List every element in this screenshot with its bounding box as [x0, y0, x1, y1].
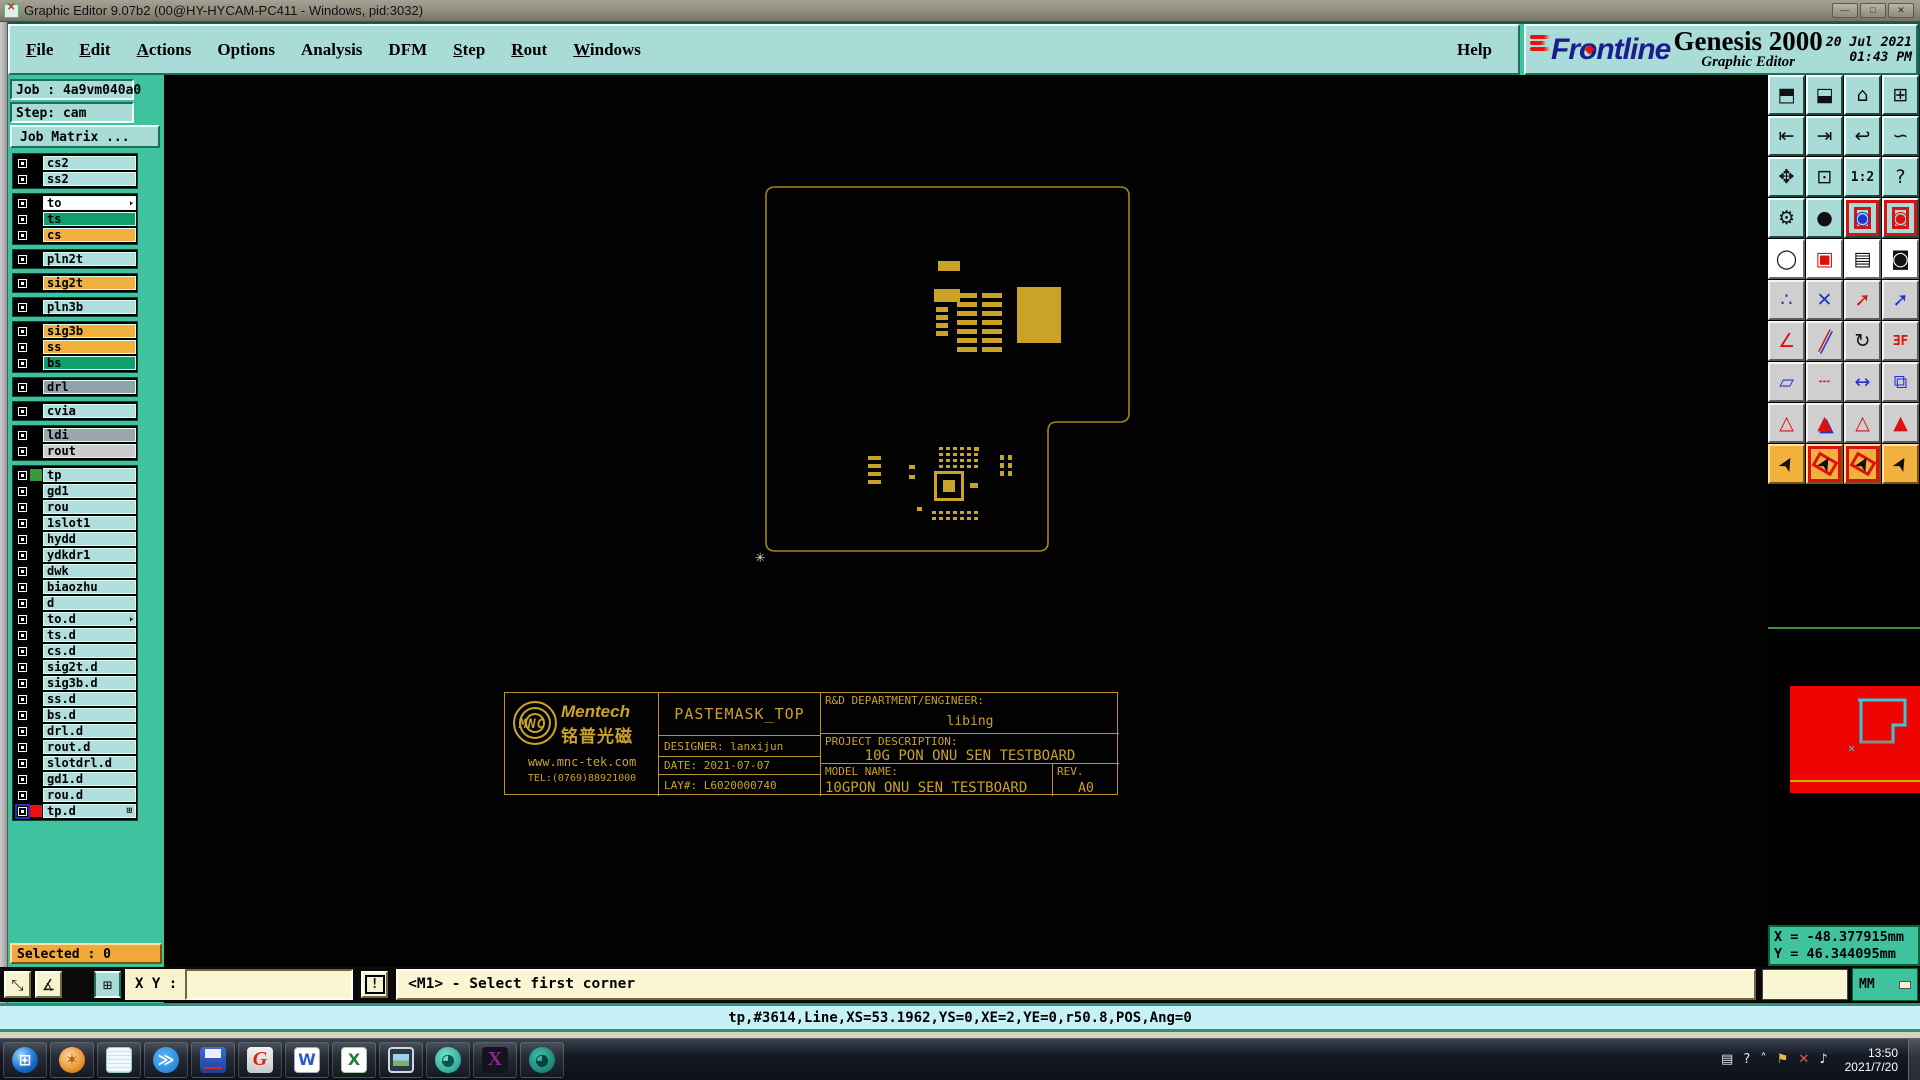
layer-row-pln2t[interactable]: pln2t	[14, 251, 136, 267]
scale-1-2-button[interactable]: 1:2	[1844, 157, 1881, 197]
pad	[868, 480, 881, 484]
shell-app-taskbar-button[interactable]: ✶	[50, 1042, 94, 1078]
layer-row-dwk[interactable]: dwk	[14, 563, 136, 579]
zoom-expand-icon: ✥	[1779, 166, 1795, 188]
pad	[953, 511, 957, 514]
layer-checkbox[interactable]	[17, 646, 28, 657]
taskbar-clock[interactable]: 13:502021/7/20	[1845, 1046, 1898, 1074]
layer-row-rout[interactable]: rout	[14, 443, 136, 459]
layer-name: ts	[43, 212, 136, 226]
layer-checkbox[interactable]	[17, 790, 28, 801]
zoom-center-button[interactable]: ⊡	[1806, 157, 1843, 197]
layer-checkbox[interactable]	[17, 174, 28, 185]
layer-grid-icon: ⊞	[127, 805, 132, 817]
layer-checkbox[interactable]	[17, 614, 28, 625]
pad	[946, 447, 950, 450]
layer-name: tp.d⊞	[43, 804, 136, 818]
layer-checkbox[interactable]	[17, 358, 28, 369]
zoom-home-icon: ⌂	[1856, 84, 1868, 106]
layer-row-ldi[interactable]: ldi	[14, 427, 136, 443]
layer-group: cvia	[12, 401, 138, 421]
layer-row-biaozhu[interactable]: biaozhu	[14, 579, 136, 595]
layer-group: pln2t	[12, 249, 138, 269]
layer-row-hydd[interactable]: hydd	[14, 531, 136, 547]
break-line-icon: ┄	[1819, 371, 1830, 393]
pan-right-icon: ⇥	[1817, 125, 1833, 147]
layer-name: biaozhu	[43, 580, 136, 594]
layer-row-drl[interactable]: drl	[14, 379, 136, 395]
window-titlebar[interactable]: Graphic Editor 9.07b2 (00@HY-HYCAM-PC411…	[0, 0, 1920, 22]
layer-row-to[interactable]: to➤	[14, 195, 136, 211]
wps-excel-taskbar-button[interactable]: X	[332, 1042, 376, 1078]
merge-shapes-button[interactable]: ⧉	[1882, 362, 1919, 402]
step-label: Step: cam	[10, 102, 134, 123]
delete-item-button[interactable]: ✕	[1806, 280, 1843, 320]
layer-row-tp[interactable]: tp	[14, 467, 136, 483]
capture-app-taskbar-button[interactable]: ◕	[426, 1042, 470, 1078]
show-desktop-button[interactable]	[1908, 1039, 1920, 1080]
menu-options[interactable]: Options	[217, 40, 275, 60]
toolbar-row: ⬒⬓⌂⊞	[1768, 75, 1920, 116]
layer-name: rout	[43, 444, 136, 458]
pan-left-icon: ⇤	[1779, 125, 1795, 147]
net-points-button[interactable]: ∴	[1768, 280, 1805, 320]
drawing-title-block: MNC Mentech 铭普光磁 www.mnc-tek.com TEL:(07…	[504, 692, 1118, 795]
menu-dfm[interactable]: DFM	[388, 40, 427, 60]
recorder-app-taskbar-button[interactable]: ◕	[520, 1042, 564, 1078]
layer-row-sig2t.d[interactable]: sig2t.d	[14, 659, 136, 675]
titleblock-project-cell: PROJECT DESCRIPTION: 10G PON ONU SEN TES…	[821, 734, 1119, 764]
toolbar-row: ∴✕➚➚	[1768, 280, 1920, 321]
layer-checkbox[interactable]	[17, 230, 28, 241]
toolbar-row: ➤➤➤➤	[1768, 444, 1920, 485]
layer-row-rou.d[interactable]: rou.d	[14, 787, 136, 803]
pad	[967, 465, 971, 468]
photo-viewer-taskbar-button[interactable]	[379, 1042, 423, 1078]
previous-view-button[interactable]: ↩	[1844, 116, 1881, 156]
feature-status-text: tp,#3614,Line,XS=53.1962,YS=0,XE=2,YE=0,…	[728, 1010, 1192, 1026]
menu-edit[interactable]: Edit	[79, 40, 110, 60]
arrow-tool-c-button[interactable]: △	[1844, 403, 1881, 443]
pad	[909, 465, 915, 469]
layer-name: gd1.d	[43, 772, 136, 786]
pad	[946, 517, 950, 520]
layer-checkbox[interactable]	[17, 566, 28, 577]
context-help-button[interactable]: ?	[1882, 157, 1919, 197]
datetime-display: 20 Jul 202101:43 PM	[1826, 35, 1912, 65]
layer-row-sig2t[interactable]: sig2t	[14, 275, 136, 291]
layer-row-gd1.d[interactable]: gd1.d	[14, 771, 136, 787]
layer-row-d[interactable]: d	[14, 595, 136, 611]
xy-input[interactable]	[185, 969, 353, 1000]
pan-right-button[interactable]: ⇥	[1806, 116, 1843, 156]
layer-name: rout.d	[43, 740, 136, 754]
zoom-center-icon: ⊡	[1817, 166, 1833, 188]
save-tool-taskbar-button[interactable]	[191, 1042, 235, 1078]
app-icon	[4, 4, 19, 18]
pad	[957, 293, 977, 298]
swap-pads-button[interactable]: ▱	[1768, 362, 1805, 402]
pad	[957, 302, 977, 307]
layer-color-swatch	[30, 805, 42, 817]
pad	[953, 517, 957, 520]
overview-pane[interactable]: ✕	[1790, 686, 1920, 793]
pad	[982, 320, 1002, 325]
layer-checkbox[interactable]	[17, 214, 28, 225]
pad	[909, 475, 915, 479]
zoom-area-button[interactable]: ⤡	[4, 971, 31, 998]
pad	[1008, 463, 1012, 468]
rotate-angle-button[interactable]: ∠	[1768, 321, 1805, 361]
dingtalk-taskbar-button[interactable]: ≫	[144, 1042, 188, 1078]
move-origin-button[interactable]: ➚	[1844, 280, 1881, 320]
titleblock-designer: DESIGNER: lanxijun	[659, 736, 821, 757]
zoom-home-button[interactable]: ⌂	[1844, 75, 1881, 115]
arrow-tool-a-button[interactable]: △	[1768, 403, 1805, 443]
dimension-icon: ↔	[1855, 371, 1871, 393]
layer-checkbox[interactable]	[17, 254, 28, 265]
zoom-window-xy-button[interactable]: ⊞	[1882, 75, 1919, 115]
photo-viewer-icon	[388, 1047, 414, 1073]
pad	[939, 453, 943, 456]
select-polygon-icon: ➤	[1849, 452, 1876, 477]
layer-row-bs.d[interactable]: bs.d	[14, 707, 136, 723]
layer-checkbox[interactable]	[17, 278, 28, 289]
exceed-x-taskbar-button[interactable]: X	[473, 1042, 517, 1078]
pad	[939, 517, 943, 520]
layer-row-bs[interactable]: bs	[14, 355, 136, 371]
select-reference-button[interactable]: ◙	[1882, 239, 1919, 279]
layer-name: to➤	[43, 196, 136, 210]
layer-checkbox[interactable]	[17, 198, 28, 209]
window-title: Graphic Editor 9.07b2 (00@HY-HYCAM-PC411…	[24, 3, 423, 18]
maximize-button[interactable]: □	[1860, 3, 1886, 18]
pad	[953, 453, 957, 456]
origin-crosshair-icon: ✳	[755, 547, 765, 567]
layer-checkbox[interactable]	[17, 326, 28, 337]
setup-tools-icon: ⚙	[1778, 207, 1795, 229]
titleblock-lay-number: LAY#: L6020000740	[659, 775, 821, 796]
flag-tray-icon[interactable]: ⚑	[1777, 1052, 1789, 1067]
wps-word-taskbar-button[interactable]: W	[285, 1042, 329, 1078]
layer-row-1slot1[interactable]: 1slot1	[14, 515, 136, 531]
measure-ruler-button[interactable]: ▤	[1844, 239, 1881, 279]
overview-origin-marker: ✕	[1848, 741, 1855, 755]
titleblock-date: DATE: 2021-07-07	[659, 757, 821, 775]
swap-pads-icon: ▱	[1779, 371, 1794, 393]
layer-row-cs[interactable]: cs	[14, 227, 136, 243]
cursor-coordinates: X = -48.377915mm Y = 46.344095mm	[1768, 925, 1920, 966]
measure-angle-button[interactable]: ∡	[35, 971, 62, 998]
menu-analysis[interactable]: Analysis	[301, 40, 362, 60]
copy-vector-button[interactable]: ➚	[1882, 280, 1919, 320]
pad	[943, 480, 955, 492]
rotate-angle-icon: ∠	[1778, 330, 1795, 352]
mirror-line-button[interactable]: ╱	[1806, 321, 1843, 361]
grid-toggle-icon: ⊞	[103, 976, 112, 994]
layer-checkbox[interactable]	[17, 598, 28, 609]
layer-row-sig3b.d[interactable]: sig3b.d	[14, 675, 136, 691]
select-frame-button[interactable]: ➤	[1806, 444, 1843, 484]
layer-checkbox[interactable]	[17, 518, 28, 529]
layer-checkbox[interactable]	[17, 502, 28, 513]
layer-checkbox[interactable]	[17, 630, 28, 641]
toolbar-row: ✥⊡1:2?	[1768, 157, 1920, 198]
layer-name: ss2	[43, 172, 136, 186]
layer-row-ss2[interactable]: ss2	[14, 171, 136, 187]
layer-checkbox[interactable]	[17, 158, 28, 169]
pad	[953, 459, 957, 462]
right-toolbar-rail: ⬒⬓⌂⊞⇤⇥↩∽✥⊡1:2?⚙●◉◉◯▣▤◙∴✕➚➚∠╱↻ƎF▱┄↔⧉△▲△▲➤…	[1768, 75, 1920, 1004]
layer-row-cs.d[interactable]: cs.d	[14, 643, 136, 659]
pad	[932, 517, 936, 520]
dimension-button[interactable]: ↔	[1844, 362, 1881, 402]
prompt-message: <M1> - Select first corner	[396, 969, 1756, 1000]
layer-row-rout.d[interactable]: rout.d	[14, 739, 136, 755]
layer-row-pln3b[interactable]: pln3b	[14, 299, 136, 315]
titleblock-model-cell: MODEL NAME: 10GPON ONU SEN TESTBOARD	[821, 764, 1053, 796]
toolbar-row: ⚙●◉◉	[1768, 198, 1920, 239]
pad	[974, 447, 978, 450]
titleblock-layer-name: PASTEMASK_TOP	[659, 693, 821, 736]
pad	[917, 507, 922, 511]
layer-name: gd1	[43, 484, 136, 498]
layer-checkbox[interactable]	[17, 742, 28, 753]
menu-rout[interactable]: Rout	[511, 40, 547, 60]
setup-tools-button[interactable]: ⚙	[1768, 198, 1805, 238]
layer-checkbox[interactable]	[17, 550, 28, 561]
select-net-icon: ➤	[1887, 452, 1914, 477]
select-polygon-button[interactable]: ➤	[1844, 444, 1881, 484]
alert-tray-icon[interactable]: ✕	[1798, 1052, 1809, 1067]
layer-checkbox[interactable]	[17, 662, 28, 673]
copy-to-layer-button[interactable]: ◯	[1768, 239, 1805, 279]
break-line-button[interactable]: ┄	[1806, 362, 1843, 402]
layer-group: tpgd1rou1slot1hyddydkdr1dwkbiaozhudto.d➤…	[12, 465, 138, 821]
genesis-g-taskbar-button[interactable]: G	[238, 1042, 282, 1078]
scale-1-2-icon: 1:2	[1851, 170, 1874, 185]
layer-name: hydd	[43, 532, 136, 546]
pad	[974, 453, 978, 456]
menu-step[interactable]: Step	[453, 40, 485, 60]
layer-checkbox[interactable]	[17, 302, 28, 313]
layer-row-ss[interactable]: ss	[14, 339, 136, 355]
copy-vector-icon: ➚	[1893, 289, 1909, 311]
rotate-90-button[interactable]: ↻	[1844, 321, 1881, 361]
layer-row-gd1[interactable]: gd1	[14, 483, 136, 499]
layer-group: to➤tscs	[12, 193, 138, 245]
pad	[936, 315, 948, 320]
layer-name: cs2	[43, 156, 136, 170]
layer-row-cvia[interactable]: cvia	[14, 403, 136, 419]
job-label: Job : 4a9vm040a0	[10, 79, 134, 100]
reference-frame-button[interactable]: ▣	[1806, 239, 1843, 279]
highlight-pad-button[interactable]: ●	[1806, 198, 1843, 238]
genesis-g-icon: G	[247, 1047, 273, 1073]
pad	[939, 459, 943, 462]
menu-bar: FileEditActionsOptionsAnalysisDFMStepRou…	[8, 24, 1520, 75]
net-reference-b-button[interactable]: ◉	[1882, 198, 1919, 238]
pad	[953, 447, 957, 450]
alert-button[interactable]: !	[361, 971, 388, 998]
mirror-line-icon: ╱	[1819, 330, 1830, 352]
layer-name: dwk	[43, 564, 136, 578]
layer-name: 1slot1	[43, 516, 136, 530]
layer-checkbox[interactable]	[17, 486, 28, 497]
layer-row-cs2[interactable]: cs2	[14, 155, 136, 171]
layer-group: sig2t	[12, 273, 138, 293]
save-tool-icon	[200, 1047, 226, 1073]
zoom-expand-button[interactable]: ✥	[1768, 157, 1805, 197]
arrow-tool-d-button[interactable]: ▲	[1882, 403, 1919, 443]
printer-tray-icon[interactable]: ▤	[1721, 1052, 1733, 1067]
net-points-icon: ∴	[1780, 289, 1792, 311]
xy-label: X Y :	[125, 969, 185, 1000]
taskbar-icons: ⊞✶≫GWX◕X◕	[0, 1042, 564, 1078]
layer-name: sig2t.d	[43, 660, 136, 674]
layer-row-drl.d[interactable]: drl.d	[14, 723, 136, 739]
layer-checkbox[interactable]	[17, 774, 28, 785]
arrow-tool-b-icon: ▲	[1817, 412, 1832, 434]
command-tool-buttons: ⤡∡⊞	[0, 971, 121, 998]
pad	[946, 465, 950, 468]
notepad-icon	[106, 1047, 132, 1073]
notepad-taskbar-button[interactable]	[97, 1042, 141, 1078]
overview-board-shape	[1855, 697, 1910, 747]
layer-checkbox[interactable]	[17, 710, 28, 721]
command-bar: ⤡∡⊞ X Y : ! <M1> - Select first corner M…	[0, 967, 1920, 1002]
pad	[1000, 463, 1004, 468]
minimize-button[interactable]: —	[1832, 3, 1858, 18]
pan-left-button[interactable]: ⇤	[1768, 116, 1805, 156]
start-button-taskbar-button[interactable]: ⊞	[3, 1042, 47, 1078]
layer-checkbox[interactable]	[17, 758, 28, 769]
mnc-telephone: TEL:(0769)88921000	[505, 773, 659, 784]
pad	[957, 347, 977, 352]
layer-row-tp.d[interactable]: tp.d⊞	[14, 803, 136, 819]
pad	[868, 456, 881, 460]
context-help-icon: ?	[1895, 166, 1905, 188]
grid-toggle-button[interactable]: ⊞	[94, 971, 121, 998]
pad	[936, 323, 948, 328]
pad	[1008, 471, 1012, 476]
layer-checkbox[interactable]	[17, 534, 28, 545]
pad	[936, 307, 948, 312]
layer-name: cs.d	[43, 644, 136, 658]
menu-windows[interactable]: Windows	[573, 40, 641, 60]
selected-count: Selected : 0	[10, 943, 162, 964]
zoom-out-button[interactable]: ⬓	[1806, 75, 1843, 115]
layer-row-ydkdr1[interactable]: ydkdr1	[14, 547, 136, 563]
layer-row-ts[interactable]: ts	[14, 211, 136, 227]
pad	[960, 453, 964, 456]
layer-active-arrow-icon: ➤	[123, 614, 136, 624]
layer-checkbox[interactable]	[17, 406, 28, 417]
product-title: Genesis 2000	[1670, 28, 1826, 54]
feature-status-bar: tp,#3614,Line,XS=53.1962,YS=0,XE=2,YE=0,…	[0, 1003, 1920, 1032]
layer-checkbox[interactable]	[17, 446, 28, 457]
menu-actions[interactable]: Actions	[137, 40, 192, 60]
layer-name: drl	[43, 380, 136, 394]
delete-item-icon: ✕	[1817, 289, 1833, 311]
layer-row-ts.d[interactable]: ts.d	[14, 627, 136, 643]
mnc-website: www.mnc-tek.com	[505, 755, 659, 769]
layer-checkbox[interactable]	[17, 342, 28, 353]
volume-tray-icon[interactable]: ♪	[1819, 1052, 1827, 1067]
close-button[interactable]: ✕	[1888, 3, 1914, 18]
layer-name: sig2t	[43, 276, 136, 290]
redraw-icon: ∽	[1893, 125, 1909, 147]
pad	[982, 338, 1002, 343]
pad	[960, 459, 964, 462]
pad	[946, 459, 950, 462]
pad	[974, 511, 978, 514]
units-dropdown-icon[interactable]	[1899, 981, 1911, 989]
layer-checkbox[interactable]	[17, 582, 28, 593]
layer-checkbox[interactable]	[17, 382, 28, 393]
help-tray-icon[interactable]: ?	[1743, 1052, 1750, 1067]
arrow-tool-b-button[interactable]: ▲	[1806, 403, 1843, 443]
arrow-tool-c-icon: △	[1855, 412, 1870, 434]
wps-excel-icon: X	[341, 1047, 367, 1073]
toolbar-grid: ⬒⬓⌂⊞⇤⇥↩∽✥⊡1:2?⚙●◉◉◯▣▤◙∴✕➚➚∠╱↻ƎF▱┄↔⧉△▲△▲➤…	[1768, 75, 1920, 485]
reference-frame-icon: ▣	[1816, 248, 1834, 270]
mirror-text-button[interactable]: ƎF	[1882, 321, 1919, 361]
layer-list: cs2ss2to➤tscspln2tsig2tpln3bsig3bssbsdrl…	[12, 153, 156, 825]
select-mode-button[interactable]: ➤	[1768, 444, 1805, 484]
layer-row-slotdrl.d[interactable]: slotdrl.d	[14, 755, 136, 771]
pad	[957, 320, 977, 325]
expand-tray-icon[interactable]: ˄	[1760, 1052, 1767, 1067]
select-net-button[interactable]: ➤	[1882, 444, 1919, 484]
layer-name: sig3b	[43, 324, 136, 338]
layer-checkbox[interactable]	[17, 694, 28, 705]
layer-checkbox[interactable]	[17, 678, 28, 689]
layer-checkbox[interactable]	[17, 806, 28, 817]
layer-name: pln2t	[43, 252, 136, 266]
layer-row-ss.d[interactable]: ss.d	[14, 691, 136, 707]
pad	[946, 511, 950, 514]
shell-app-icon: ✶	[59, 1047, 85, 1073]
pad	[982, 311, 1002, 316]
editor-canvas[interactable]: ✳ MNC Mentech 铭普光磁 www.mnc-tek.com TEL:(…	[164, 75, 1768, 1004]
toolbar-row: ◯▣▤◙	[1768, 239, 1920, 280]
layer-checkbox[interactable]	[17, 470, 28, 481]
menu-help[interactable]: Help	[1457, 40, 1492, 60]
menu-file[interactable]: File	[26, 40, 53, 60]
layer-row-sig3b[interactable]: sig3b	[14, 323, 136, 339]
pad	[970, 483, 978, 488]
layer-name: ss.d	[43, 692, 136, 706]
pad	[960, 465, 964, 468]
frontline-logo: Frontline	[1530, 33, 1670, 67]
job-matrix-button[interactable]: Job Matrix ...	[10, 125, 160, 148]
mentech-cn: 铭普光磁	[561, 722, 633, 747]
net-reference-a-button[interactable]: ◉	[1844, 198, 1881, 238]
layer-row-to.d[interactable]: to.d➤	[14, 611, 136, 627]
redraw-button[interactable]: ∽	[1882, 116, 1919, 156]
pad	[960, 517, 964, 520]
layer-checkbox[interactable]	[17, 430, 28, 441]
zoom-in-button[interactable]: ⬒	[1768, 75, 1805, 115]
pad	[957, 311, 977, 316]
pad	[868, 472, 881, 476]
layer-checkbox[interactable]	[17, 726, 28, 737]
units-selector[interactable]: MM	[1852, 968, 1918, 1001]
toolbar-row: ▱┄↔⧉	[1768, 362, 1920, 403]
layer-row-rou[interactable]: rou	[14, 499, 136, 515]
move-origin-icon: ➚	[1855, 289, 1871, 311]
